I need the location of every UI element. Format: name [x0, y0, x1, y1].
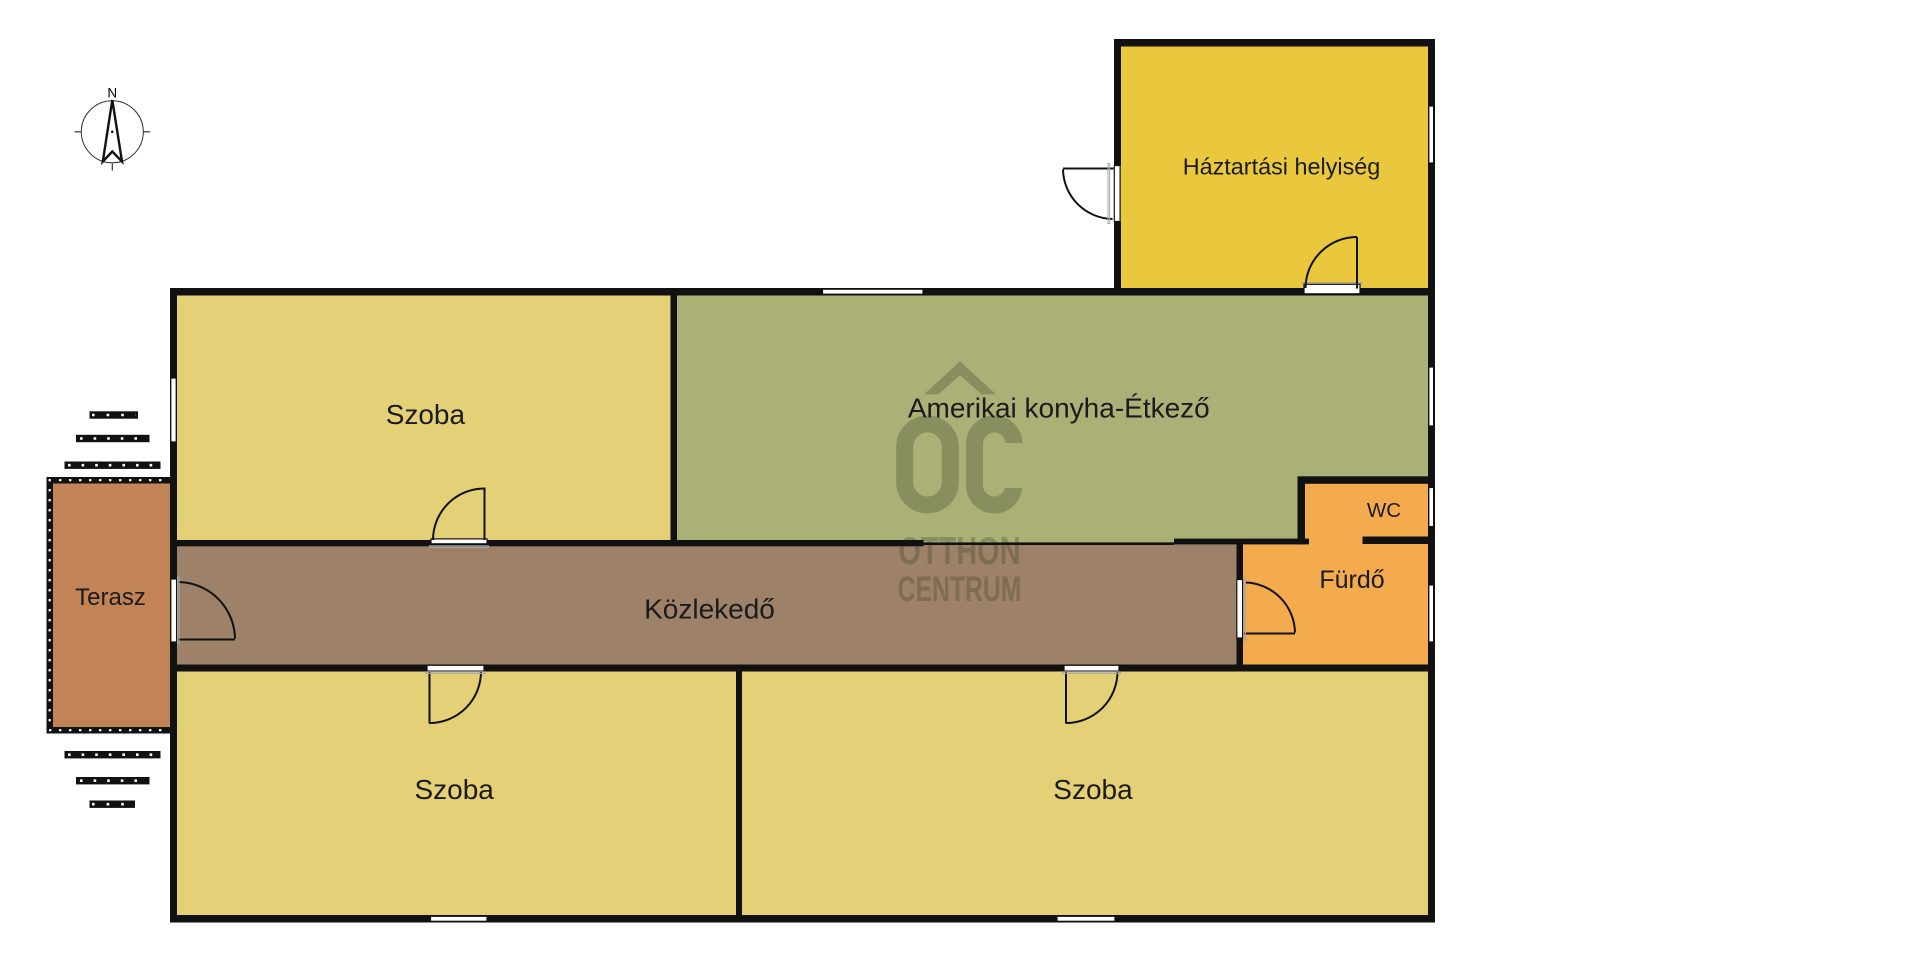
svg-text:Amerikai konyha-Étkező: Amerikai konyha-Étkező: [908, 393, 1210, 424]
svg-text:Fürdő: Fürdő: [1319, 566, 1384, 594]
svg-text:Háztartási helyiség: Háztartási helyiség: [1183, 154, 1381, 180]
svg-text:Terasz: Terasz: [75, 584, 146, 611]
svg-text:N: N: [107, 86, 117, 101]
svg-text:CENTRUM: CENTRUM: [898, 569, 1022, 609]
svg-text:OTTHON: OTTHON: [898, 530, 1020, 573]
svg-text:Szoba: Szoba: [414, 774, 494, 805]
svg-text:Szoba: Szoba: [386, 399, 466, 430]
svg-text:Közlekedő: Közlekedő: [644, 594, 775, 625]
svg-text:WC: WC: [1367, 499, 1401, 522]
svg-text:Szoba: Szoba: [1053, 774, 1133, 805]
